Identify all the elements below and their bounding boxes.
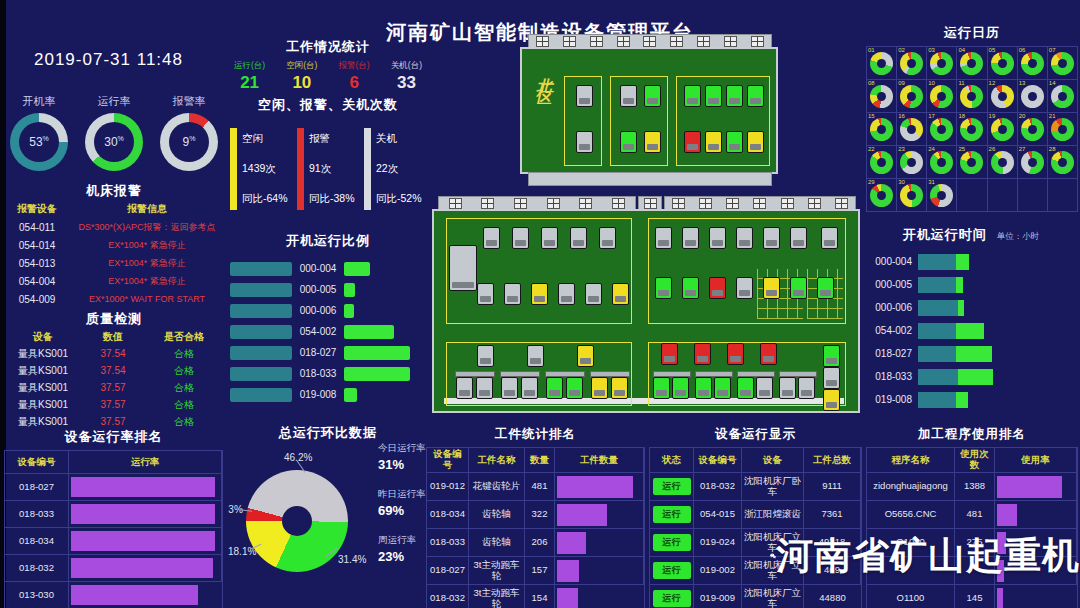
- pie-side-stat: 周运行率23%: [378, 534, 428, 564]
- calendar-day-cell[interactable]: 07: [1048, 47, 1078, 80]
- calendar-day-cell[interactable]: 15: [867, 113, 897, 146]
- workpiece-bar-cell: [555, 501, 644, 529]
- calendar-day-donut: [991, 85, 1014, 108]
- column-header: 状态: [650, 448, 694, 473]
- roof-window: [644, 198, 657, 209]
- calendar-day-number: 21: [1049, 113, 1056, 119]
- calendar-day-cell[interactable]: 20: [1018, 113, 1048, 146]
- calendar-day-donut: [1051, 85, 1074, 108]
- runtime-green-bar: [958, 300, 964, 316]
- device-status-cell: 运行: [650, 501, 694, 529]
- calendar-day-cell[interactable]: 25: [957, 146, 987, 179]
- calendar-day-donut: [960, 52, 983, 75]
- north-dock: [528, 172, 772, 186]
- gauge-label: 报警率: [173, 94, 206, 109]
- quality-header-row: 设备数值是否合格: [4, 328, 224, 345]
- machine-icon[interactable]: [612, 283, 629, 305]
- workstats-items: 运行(台)21空闲(台)10报警(台)6关机(台)33: [230, 60, 426, 93]
- machine-icon[interactable]: [684, 131, 701, 153]
- ratio-left-bar: [230, 325, 292, 339]
- ratio-device-id: 054-002: [292, 326, 344, 337]
- quality-device: 量具KS001: [4, 381, 82, 395]
- column-header: 设备: [4, 330, 82, 344]
- column-header: 数量: [525, 448, 555, 473]
- machine-icon[interactable]: [695, 377, 712, 399]
- rank-device-id: 018-027: [5, 474, 69, 501]
- count-bar: [364, 128, 371, 210]
- runrate-bar: [71, 531, 215, 551]
- quality-row: 量具KS00137.54合格: [4, 345, 224, 362]
- calendar-day-donut: [1021, 85, 1044, 108]
- machine-icon[interactable]: [823, 389, 840, 411]
- machine-icon[interactable]: [823, 367, 840, 389]
- device-name: 浙江阳煌滚齿: [742, 501, 804, 529]
- alarm-header-row: 报警设备报警信息: [4, 200, 224, 218]
- machine-icon[interactable]: [817, 277, 834, 299]
- count-text: 关机22次同比-52%: [376, 128, 422, 210]
- calendar-day-donut: [930, 85, 953, 108]
- runtime-title: 开机运行时间: [903, 226, 987, 244]
- calendar-day-cell[interactable]: 08: [867, 80, 897, 113]
- calendar-day-donut: [1051, 118, 1074, 141]
- machine-icon[interactable]: [737, 377, 754, 399]
- calendar-day-cell[interactable]: 06: [1018, 47, 1048, 80]
- roof-window: [536, 36, 549, 47]
- gauge-ring: 30%: [85, 113, 143, 171]
- machine-icon[interactable]: [682, 227, 699, 249]
- gauge-unit: %: [118, 135, 124, 142]
- alarm-message: EX*1004* 紧急停止: [70, 239, 224, 252]
- roof-window: [724, 36, 737, 47]
- machine-icon[interactable]: [501, 377, 518, 399]
- column-header: 运行率: [69, 451, 222, 474]
- calendar-day-cell[interactable]: 04: [957, 47, 987, 80]
- ratio-right-bar: [344, 262, 370, 276]
- machine-icon[interactable]: [726, 131, 743, 153]
- machine-icon[interactable]: [779, 377, 796, 399]
- alarm-device: 054-013: [4, 258, 70, 269]
- calendar-donut-hole: [1028, 125, 1037, 134]
- machine-icon[interactable]: [705, 85, 722, 107]
- runtime-teal-bar: [918, 346, 956, 362]
- machine-icon[interactable]: [456, 377, 473, 399]
- machine-icon[interactable]: [684, 85, 701, 107]
- calendar-day-cell[interactable]: 09: [897, 80, 927, 113]
- rank-device-id: 013-030: [5, 582, 69, 608]
- machine-icon[interactable]: [790, 277, 807, 299]
- machine-icon[interactable]: [591, 377, 608, 399]
- roof-window: [699, 198, 712, 209]
- status-badge: 运行: [653, 562, 691, 579]
- workstats-title: 工作情况统计: [230, 38, 426, 56]
- device-id: 018-032: [694, 473, 742, 501]
- donut-hole: [282, 506, 312, 536]
- calendar-day-donut: [960, 85, 983, 108]
- machine-icon[interactable]: [726, 85, 743, 107]
- workpiece-bar: [557, 476, 633, 498]
- quality-pass: 合格: [144, 415, 224, 429]
- device-status-cell: 运行: [650, 473, 694, 501]
- gauge-value: 30%: [104, 135, 124, 149]
- calendar-day-donut: [1021, 151, 1044, 174]
- runtime-row: 000-005: [864, 273, 1078, 296]
- machine-icon[interactable]: [566, 377, 583, 399]
- status-badge: 运行: [653, 478, 691, 495]
- calendar-day-cell[interactable]: 11: [957, 80, 987, 113]
- calendar-day-cell[interactable]: 24: [927, 146, 957, 179]
- machine-icon[interactable]: [577, 345, 594, 367]
- ratio-device-id: 018-027: [292, 347, 344, 358]
- calendar-day-cell[interactable]: 29: [867, 179, 897, 212]
- machine-icon[interactable]: [512, 227, 529, 249]
- pie-side-label: 今日运行率: [378, 442, 428, 455]
- machine-icon[interactable]: [483, 227, 500, 249]
- counts-items: 空闲1439次同比-64%报警91次同比-38%关机22次同比-52%: [230, 128, 426, 210]
- machine-icon[interactable]: [477, 283, 494, 305]
- rank-bar-cell: [69, 501, 222, 528]
- roof-window: [617, 36, 630, 47]
- quality-device: 量具KS001: [4, 364, 82, 378]
- machine-icon[interactable]: [823, 345, 840, 367]
- machine-icon[interactable]: [821, 227, 838, 249]
- ratio-device-id: 000-005: [292, 284, 344, 295]
- runtime-panel: 开机运行时间 单位：小时 000-004000-005000-006054-00…: [864, 226, 1078, 411]
- workstats-panel: 工作情况统计 运行(台)21空闲(台)10报警(台)6关机(台)33: [230, 38, 426, 93]
- calendar-empty-cell: [1018, 179, 1048, 212]
- pie-side-stat: 今日运行率31%: [378, 442, 428, 472]
- watermark-text: 河南省矿山起重机: [776, 531, 1080, 581]
- roof-window: [449, 198, 462, 209]
- gauges-panel: 开机率53%运行率30%报警率9%: [4, 94, 224, 180]
- calendar-day-number: 29: [868, 179, 875, 185]
- roof-window: [579, 198, 592, 209]
- count-label: 报警: [309, 132, 355, 146]
- calendar-day-cell[interactable]: 22: [867, 146, 897, 179]
- machine-icon[interactable]: [709, 277, 726, 299]
- roof-window: [547, 198, 560, 209]
- workpiece-qty: 322: [525, 501, 555, 529]
- calendar-day-number: 20: [1019, 113, 1026, 119]
- workpiece-bar: [557, 588, 578, 608]
- calendar-day-cell[interactable]: 27: [1018, 146, 1048, 179]
- gauge: 报警率9%: [154, 94, 224, 180]
- total-ratio-donut-chart: [246, 470, 348, 572]
- runtime-teal-bar: [918, 323, 956, 339]
- machine-icon[interactable]: [661, 343, 678, 365]
- machine-icon[interactable]: [585, 283, 602, 305]
- machine-icon[interactable]: [558, 283, 575, 305]
- runrate-rank-table: 设备编号运行率018-027018-033018-034018-032013-0…: [4, 450, 223, 608]
- calendar-day-donut: [870, 151, 893, 174]
- workpiece-device-id: 018-033: [427, 529, 469, 557]
- machine-icon[interactable]: [747, 131, 764, 153]
- runtime-row: 054-002: [864, 319, 1078, 342]
- runtime-device-id: 054-002: [864, 325, 918, 336]
- workstat-item: 运行(台)21: [234, 60, 265, 93]
- machine-icon[interactable]: [644, 85, 661, 107]
- machine-alarm-title: 机床报警: [4, 182, 224, 200]
- calendar-donut-hole: [998, 158, 1007, 167]
- calendar-empty-cell: [957, 179, 987, 212]
- calendar-day-cell[interactable]: 10: [927, 80, 957, 113]
- calendar-day-cell[interactable]: 14: [1048, 80, 1078, 113]
- program-name: O1100: [867, 585, 955, 608]
- gauge: 运行率30%: [79, 94, 149, 180]
- device-name: 沈阳机床厂卧车: [742, 473, 804, 501]
- quality-pass: 合格: [144, 398, 224, 412]
- rank-bar-cell: [69, 582, 222, 608]
- calendar-day-number: 23: [898, 146, 905, 152]
- calendar-day-cell[interactable]: 12: [988, 80, 1018, 113]
- counts-title: 空闲、报警、关机次数: [230, 96, 426, 114]
- factory-zone: [648, 218, 846, 324]
- ratio-left-bar: [230, 304, 292, 318]
- machine-icon[interactable]: [760, 343, 777, 365]
- machine-icon[interactable]: [709, 227, 726, 249]
- machine-icon[interactable]: [620, 85, 637, 107]
- calendar-day-cell[interactable]: 31: [927, 179, 957, 212]
- machine-icon[interactable]: [655, 227, 672, 249]
- workpiece-rank-panel: 工件统计排名 设备编号工件名称数量工件数量019-012花键齿轮片481018-…: [426, 426, 645, 608]
- quality-pass: 合格: [144, 381, 224, 395]
- count-label: 关机: [376, 132, 422, 146]
- machine-icon[interactable]: [521, 377, 538, 399]
- quality-device: 量具KS001: [4, 398, 82, 412]
- machine-icon[interactable]: [655, 277, 672, 299]
- count-value: 22次: [376, 162, 422, 176]
- machine-icon[interactable]: [705, 131, 722, 153]
- calendar-donut-hole: [1028, 92, 1037, 101]
- calendar-day-cell[interactable]: 02: [897, 47, 927, 80]
- calendar-donut-hole: [877, 92, 886, 101]
- ratio-right-bar: [344, 283, 355, 297]
- machine-icon[interactable]: [747, 85, 764, 107]
- program-bar-cell: [995, 585, 1077, 608]
- total-ratio-title: 总运行环比数据: [228, 424, 428, 442]
- runtime-device-id: 000-004: [864, 256, 918, 267]
- device-id: 019-002: [694, 557, 742, 585]
- machine-icon[interactable]: [620, 131, 637, 153]
- workpiece-bar-cell: [555, 473, 644, 501]
- machine-icon[interactable]: [763, 227, 780, 249]
- calendar-donut-hole: [937, 92, 946, 101]
- calendar-day-cell[interactable]: 18: [957, 113, 987, 146]
- workpiece-bar-cell: [555, 585, 644, 608]
- roof-window: [751, 36, 764, 47]
- calendar-day-number: 24: [928, 146, 935, 152]
- device-status-cell: 运行: [650, 529, 694, 557]
- calendar-day-cell[interactable]: 17: [927, 113, 957, 146]
- calendar-day-number: 28: [1049, 146, 1056, 152]
- calendar-day-cell[interactable]: 21: [1048, 113, 1078, 146]
- machine-icon[interactable]: [570, 227, 587, 249]
- machine-icon[interactable]: [682, 277, 699, 299]
- calendar-donut-hole: [1028, 158, 1037, 167]
- count-yoy: 同比-38%: [309, 192, 355, 206]
- calendar-day-cell[interactable]: 30: [897, 179, 927, 212]
- calendar-day-cell[interactable]: 28: [1048, 146, 1078, 179]
- machine-icon[interactable]: [653, 377, 670, 399]
- machine-icon[interactable]: [476, 377, 493, 399]
- device-status-cell: 运行: [650, 557, 694, 585]
- roof-window: [726, 198, 739, 209]
- workpiece-bar-cell: [555, 557, 644, 585]
- program-bar: [997, 588, 1003, 608]
- roof-window: [753, 198, 766, 209]
- runrate-bar: [71, 504, 215, 524]
- program-name: zidonghuajiagong: [867, 473, 955, 501]
- machine-icon[interactable]: [798, 377, 815, 399]
- runtime-green-bar: [956, 346, 992, 362]
- machine-icon[interactable]: [576, 131, 593, 153]
- calendar-day-donut: [991, 118, 1014, 141]
- calendar-day-donut: [900, 52, 923, 75]
- machine-icon[interactable]: [644, 131, 661, 153]
- machine-icon[interactable]: [714, 377, 731, 399]
- ratio-row: 018-033: [230, 363, 426, 384]
- calendar-donut-hole: [967, 59, 976, 68]
- quality-pass: 合格: [144, 347, 224, 361]
- count-value: 1439次: [242, 162, 288, 176]
- machine-icon[interactable]: [531, 283, 548, 305]
- workpiece-bar: [557, 560, 579, 582]
- ratio-device-id: 000-004: [292, 263, 344, 274]
- calendar-donut-hole: [937, 59, 946, 68]
- program-name: O5656.CNC: [867, 501, 955, 529]
- total-ratio-panel: 总运行环比数据 46.2%31.4%18.1%4.3% 今日运行率31%昨日运行…: [228, 424, 428, 608]
- calendar-donut-hole: [967, 158, 976, 167]
- column-header: 使用率: [995, 448, 1077, 473]
- calendar-day-donut: [900, 151, 923, 174]
- gauge-hole: 53%: [19, 122, 59, 162]
- calendar-donut-hole: [937, 125, 946, 134]
- calendar-day-number: 15: [868, 113, 875, 119]
- machine-icon[interactable]: [599, 227, 616, 249]
- workpiece-name: 齿轮轴: [469, 529, 525, 557]
- calendar-empty-cell: [988, 179, 1018, 212]
- column-header: 使用次数: [955, 448, 995, 473]
- workstat-item: 空闲(台)10: [286, 60, 317, 93]
- roof-window: [670, 36, 683, 47]
- calendar-day-cell[interactable]: 03: [927, 47, 957, 80]
- calendar-day-cell[interactable]: 13: [1018, 80, 1048, 113]
- machine-icon[interactable]: [576, 85, 593, 107]
- calendar-donut-hole: [1058, 125, 1067, 134]
- roof-window: [514, 198, 527, 209]
- device-total: 9111: [804, 473, 861, 501]
- calendar-day-donut: [1051, 151, 1074, 174]
- machine-icon[interactable]: [527, 345, 544, 367]
- calendar-day-cell[interactable]: 26: [988, 146, 1018, 179]
- count-yoy: 同比-52%: [376, 192, 422, 206]
- machine-icon[interactable]: [504, 283, 521, 305]
- workstat-item: 关机(台)33: [391, 60, 422, 93]
- machine-icon[interactable]: [449, 245, 477, 291]
- workstat-label: 报警(台): [339, 60, 370, 72]
- machine-icon[interactable]: [477, 345, 494, 367]
- calendar-day-number: 04: [958, 47, 965, 53]
- calendar-day-cell[interactable]: 23: [897, 146, 927, 179]
- machine-icon[interactable]: [727, 343, 744, 365]
- roof-window: [643, 36, 656, 47]
- roof-window: [697, 36, 710, 47]
- calendar-day-number: 31: [928, 179, 935, 185]
- machine-icon[interactable]: [546, 377, 563, 399]
- alarm-message: DS*300*(X)APC报警：返回参考点: [70, 221, 224, 234]
- ratio-left-bar: [230, 367, 292, 381]
- roof-window: [808, 198, 821, 209]
- run-calendar-grid: 0102030405060708091011121314151617181920…: [866, 46, 1078, 212]
- gauge: 开机率53%: [4, 94, 74, 180]
- ratio-row: 000-005: [230, 279, 426, 300]
- column-header: 程序名称: [867, 448, 955, 473]
- machine-icon[interactable]: [763, 277, 780, 299]
- run-calendar-panel: 运行日历 01020304050607080910111213141516171…: [866, 24, 1078, 212]
- workpiece-device-id: 018-027: [427, 557, 469, 585]
- calendar-donut-hole: [998, 125, 1007, 134]
- workpiece-name: 花键齿轮片: [469, 473, 525, 501]
- machine-icon[interactable]: [541, 227, 558, 249]
- machine-icon[interactable]: [736, 277, 753, 299]
- status-badge: 运行: [653, 506, 691, 523]
- workpiece-qty: 154: [525, 585, 555, 608]
- workpiece-bar-cell: [555, 529, 644, 557]
- machine-icon[interactable]: [736, 227, 753, 249]
- device-total: 44880: [804, 585, 861, 608]
- column-header: 设备编号: [694, 448, 742, 473]
- power-run-ratio-title: 开机运行比例: [230, 232, 426, 250]
- workstat-value: 10: [286, 73, 317, 93]
- runtime-row: 019-008: [864, 388, 1078, 411]
- calendar-day-number: 05: [989, 47, 996, 53]
- calendar-day-donut: [870, 184, 893, 207]
- workpiece-rank-title: 工件统计排名: [426, 426, 645, 443]
- count-bar: [230, 128, 237, 210]
- quality-value: 37.57: [82, 382, 144, 393]
- device-id: 019-009: [694, 585, 742, 608]
- runtime-green-bar: [956, 254, 969, 270]
- alarm-message: EX*1000* WAIT FOR START: [70, 294, 224, 304]
- roof-window: [781, 198, 794, 209]
- calendar-day-donut: [870, 118, 893, 141]
- calendar-day-donut: [930, 184, 953, 207]
- program-bar: [997, 504, 1017, 526]
- machine-icon[interactable]: [756, 377, 773, 399]
- machine-icon[interactable]: [611, 377, 628, 399]
- machine-icon[interactable]: [694, 343, 711, 365]
- rank-bar-cell: [69, 474, 222, 501]
- roof-window: [563, 36, 576, 47]
- count-text: 空闲1439次同比-64%: [242, 128, 288, 210]
- pie-side-value: 69%: [378, 503, 428, 518]
- machine-icon[interactable]: [790, 227, 807, 249]
- calendar-day-cell[interactable]: 05: [988, 47, 1018, 80]
- column-header: 是否合格: [144, 330, 224, 344]
- machine-icon[interactable]: [672, 377, 689, 399]
- calendar-donut-hole: [877, 125, 886, 134]
- calendar-day-cell[interactable]: 16: [897, 113, 927, 146]
- gauge-value: 9%: [183, 135, 196, 149]
- calendar-day-cell[interactable]: 01: [867, 47, 897, 80]
- calendar-day-number: 19: [989, 113, 996, 119]
- calendar-day-cell[interactable]: 19: [988, 113, 1018, 146]
- calendar-day-number: 16: [898, 113, 905, 119]
- power-run-ratio-rows: 000-004000-005000-006054-002018-027018-0…: [230, 258, 426, 405]
- ratio-right-bar: [344, 346, 410, 360]
- calendar-day-donut: [991, 52, 1014, 75]
- program-bar-cell: [995, 501, 1077, 529]
- factory-zone: [648, 342, 846, 406]
